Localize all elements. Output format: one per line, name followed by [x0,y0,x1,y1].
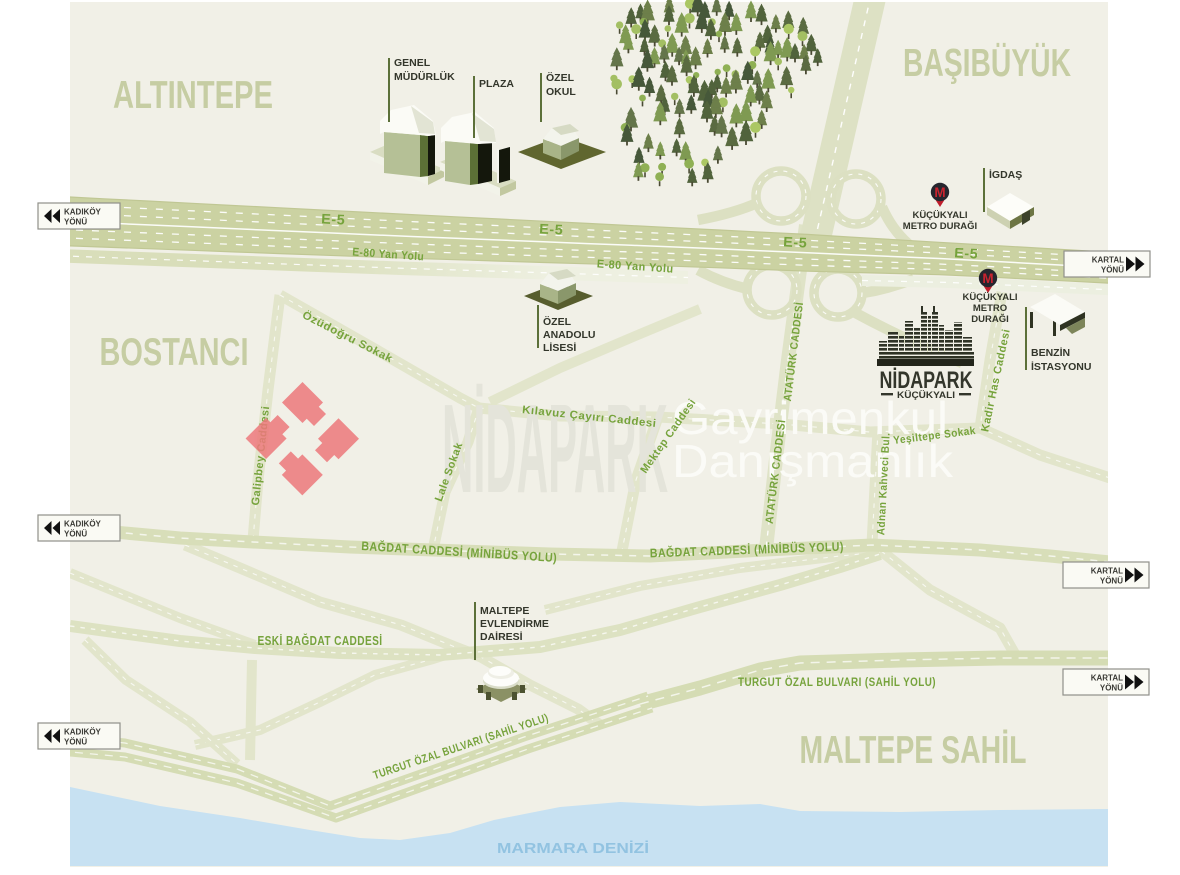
svg-text:OKUL: OKUL [546,86,576,98]
svg-text:ÖZEL: ÖZEL [546,71,575,84]
svg-text:ALTINTEPE: ALTINTEPE [113,74,273,117]
svg-text:YÖNÜ: YÖNÜ [1100,577,1123,586]
svg-text:KADIKÖY: KADIKÖY [64,728,102,737]
svg-text:KARTAL: KARTAL [1091,674,1123,683]
svg-text:KÜÇÜKYALI: KÜÇÜKYALI [897,390,955,401]
svg-text:PLAZA: PLAZA [479,78,514,90]
svg-text:DURAĞI: DURAĞI [971,313,1008,325]
svg-text:LİSESİ: LİSESİ [543,341,576,354]
svg-text:E-5: E-5 [539,220,564,237]
svg-text:M: M [934,185,945,200]
svg-text:BENZİN: BENZİN [1031,346,1070,359]
svg-text:İSTASYONU: İSTASYONU [1031,360,1091,373]
svg-text:METRO: METRO [973,303,1007,314]
svg-text:ESKİ BAĞDAT CADDESİ: ESKİ BAĞDAT CADDESİ [258,633,383,648]
svg-text:YÖNÜ: YÖNÜ [64,738,87,747]
svg-text:ÖZEL: ÖZEL [543,315,572,328]
svg-text:MALTEPE SAHİL: MALTEPE SAHİL [800,729,1027,772]
svg-text:KÜÇÜKYALI: KÜÇÜKYALI [912,210,967,221]
svg-text:YÖNÜ: YÖNÜ [64,218,87,227]
svg-text:MÜDÜRLÜK: MÜDÜRLÜK [394,70,455,83]
svg-text:EVLENDİRME: EVLENDİRME [480,617,549,630]
svg-text:E-5: E-5 [954,244,979,261]
svg-text:E-5: E-5 [783,233,808,250]
svg-text:E-5: E-5 [321,210,346,227]
svg-text:BOSTANCI: BOSTANCI [100,331,249,374]
svg-text:GENEL: GENEL [394,57,431,69]
svg-text:İGDAŞ: İGDAŞ [989,168,1022,181]
svg-text:DAİRESİ: DAİRESİ [480,630,523,643]
svg-text:MARMARA DENİZİ: MARMARA DENİZİ [497,840,649,857]
svg-text:KÜÇÜKYALI: KÜÇÜKYALI [962,292,1017,303]
svg-text:BAŞIBÜYÜK: BAŞIBÜYÜK [903,42,1071,85]
svg-text:YÖNÜ: YÖNÜ [1101,266,1124,275]
svg-text:YÖNÜ: YÖNÜ [1100,684,1123,693]
svg-text:YÖNÜ: YÖNÜ [64,530,87,539]
svg-text:METRO DURAĞI: METRO DURAĞI [903,220,977,232]
svg-text:MALTEPE: MALTEPE [480,605,529,617]
svg-text:KADIKÖY: KADIKÖY [64,520,102,529]
svg-text:KARTAL: KARTAL [1092,256,1124,265]
svg-text:M: M [982,271,993,286]
svg-text:ANADOLU: ANADOLU [543,329,596,341]
svg-text:TURGUT ÖZAL BULVARI (SAHİL YOL: TURGUT ÖZAL BULVARI (SAHİL YOLU) [738,676,936,689]
svg-text:KARTAL: KARTAL [1091,567,1123,576]
svg-text:NİDAPARK: NİDAPARK [442,380,668,520]
svg-text:KADIKÖY: KADIKÖY [64,208,102,217]
